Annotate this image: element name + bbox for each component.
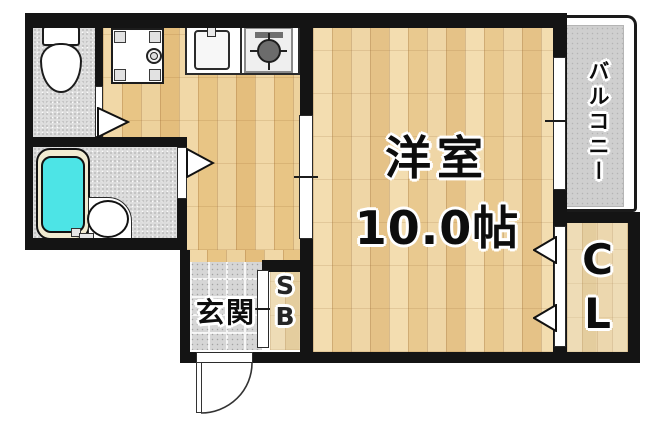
washing-machine-pan-icon [111, 28, 164, 84]
shoebox-label-line1: S [268, 270, 302, 301]
shoebox-label: S B [268, 270, 302, 332]
entrance-label: 玄関 [184, 291, 268, 331]
wall-divider-upper [300, 28, 313, 116]
closet-label-line2: L [567, 287, 628, 341]
door-swing-icon [197, 362, 255, 415]
main-room-size-label: 10.0帖 [318, 192, 556, 258]
main-room-floor [313, 28, 553, 352]
wall-balcony-bottom [553, 212, 640, 223]
wall-toilet-bath [25, 137, 187, 147]
wall-toilet-right [95, 28, 103, 86]
pan-corner [114, 31, 126, 43]
door-arrow-icon [186, 148, 215, 178]
wall-bath-bottom [25, 238, 187, 250]
shoebox-label-line2: B [268, 301, 302, 332]
counter-divider [240, 25, 242, 74]
burner-icon [257, 39, 281, 63]
door-arrow-icon [97, 107, 130, 138]
balcony-label: バルコニー [583, 37, 613, 207]
pan-corner [149, 69, 161, 81]
wall-top [25, 13, 567, 28]
door-arrow-icon [533, 304, 557, 332]
closet-label-line1: C [567, 233, 628, 287]
drain-inner [150, 52, 158, 60]
wall-closet-right [628, 223, 640, 363]
pan-corner [149, 31, 161, 43]
sliding-door-tick [294, 176, 318, 178]
closet-label: C L [567, 233, 628, 341]
main-room-label: 洋室 [330, 122, 544, 188]
floor-plan: 洋室 10.0帖 玄関 S B C L バルコニー [0, 0, 665, 434]
bathtub-water [41, 156, 85, 233]
wall-left [25, 13, 33, 250]
balcony-window-icon [553, 57, 566, 190]
pan-corner [114, 69, 126, 81]
window-tick [545, 120, 567, 122]
